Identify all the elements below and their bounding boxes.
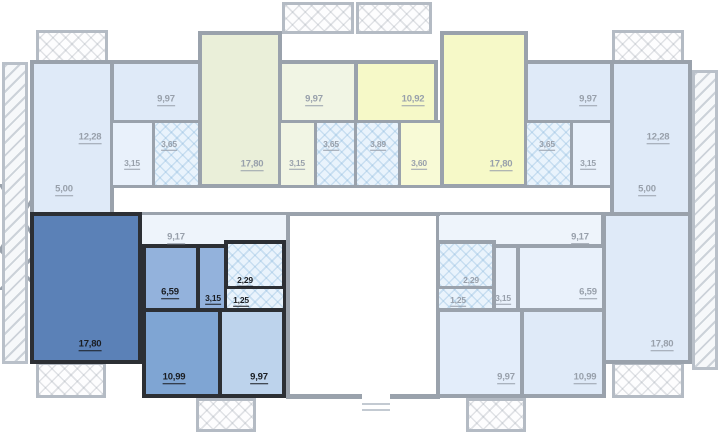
core-bottom-wall: [286, 394, 362, 399]
dim-bathroom: 3,65: [539, 140, 555, 149]
kitchen-bottom-right[interactable]: [436, 308, 524, 398]
dim-room-second: 10,99: [574, 372, 597, 382]
bathtub-icon: [0, 406, 42, 426]
dim-room-main: 12,28: [647, 132, 670, 142]
bathroom-selected: [224, 240, 286, 290]
bathroom-yellow: [354, 120, 402, 188]
dim-hallway: 3,60: [411, 159, 427, 168]
hall-divider-wall: [196, 246, 200, 310]
dim-hallway: 3,15: [124, 159, 140, 168]
room-second-selected[interactable]: [142, 308, 222, 398]
room-main-yellow[interactable]: [440, 31, 528, 188]
dim-kitchen: 5,00: [55, 184, 73, 194]
balcony-top-mid-right: [356, 2, 432, 34]
dim-room-main: 12,28: [79, 132, 102, 142]
dim-kitchen: 9,97: [497, 372, 515, 382]
bathroom-top-left: [152, 120, 202, 188]
dim-kitchen: 9,97: [305, 94, 323, 104]
kitchen-selected[interactable]: [218, 308, 286, 398]
dim-shared-corridor: 9,17: [167, 232, 185, 242]
hallway-yellow: [398, 120, 444, 188]
dim-kitchen: 5,00: [638, 184, 656, 194]
dim-bathroom: 3,89: [370, 140, 386, 149]
dim-bathroom-selected: 2,29: [237, 276, 253, 285]
dim-room-second: 9,97: [579, 94, 597, 104]
balcony-bottom-right-main: [612, 362, 684, 398]
entrance-step: [362, 409, 390, 411]
dim-kitchen: 10,92: [402, 94, 425, 104]
room-second-bottom-right[interactable]: [520, 308, 606, 398]
dim-room-main: 17,80: [651, 339, 674, 349]
hall-divider-wall: [516, 246, 520, 310]
dim-corridor-selected: 3,15: [205, 294, 221, 303]
dim-bathroom: 3,65: [323, 140, 339, 149]
dim-wc: 1,25: [450, 296, 466, 305]
floor-plan: Avito 2 22,2543,2244,92 1 17,8034,5735,6…: [0, 0, 720, 435]
dim-room-second: 9,97: [157, 94, 175, 104]
balcony-door: [0, 382, 16, 390]
toilet-icon: [0, 426, 11, 435]
dim-hallway: 3,15: [580, 159, 596, 168]
dim-wc-selected: 1,25: [233, 296, 249, 305]
dim-corridor: 3,15: [495, 294, 511, 303]
balcony-bottom-right-kitchen: [466, 398, 526, 432]
entrance-step: [362, 403, 390, 405]
kitchen-green[interactable]: [278, 60, 358, 124]
bathroom-green: [314, 120, 358, 188]
entrance-door: [0, 398, 20, 406]
core-bottom-wall: [390, 394, 440, 399]
entrance-door-selected: [0, 390, 20, 398]
balcony-selected-main: [36, 362, 106, 398]
stairwell-wall: [286, 212, 290, 398]
dim-shared-corridor: 9,17: [571, 232, 589, 242]
dim-bathroom: 3,65: [161, 140, 177, 149]
dim-hallway-selected: 6,59: [161, 287, 179, 297]
room-second-top-right[interactable]: [524, 60, 614, 124]
kitchen-yellow[interactable]: [354, 60, 438, 124]
balcony-door-selected: [0, 366, 16, 374]
bathroom-top-right: [524, 120, 574, 188]
adjacent-section-left: [2, 62, 28, 364]
room-second-top-left[interactable]: [110, 60, 202, 124]
hallway-top-left: [110, 120, 156, 188]
hallway-selected[interactable]: [142, 244, 236, 312]
dim-hallway: 6,59: [579, 287, 597, 297]
dim-bathroom: 2,29: [463, 276, 479, 285]
core-top-wall: [286, 212, 440, 216]
dim-kitchen-selected: 9,97: [250, 372, 268, 382]
adjacent-section-right: [692, 70, 718, 370]
balcony-top-mid-left: [282, 2, 354, 34]
dim-room-main-selected: 17,80: [79, 339, 102, 349]
dim-room-main: 17,80: [490, 159, 513, 169]
balcony-door: [0, 374, 20, 382]
dim-room-second-selected: 10,99: [163, 372, 186, 382]
dim-room-main: 17,80: [241, 159, 264, 169]
balcony-selected-kitchen: [196, 398, 256, 432]
room-main-bottom-right[interactable]: [602, 212, 692, 364]
dim-hallway: 3,15: [289, 159, 305, 168]
